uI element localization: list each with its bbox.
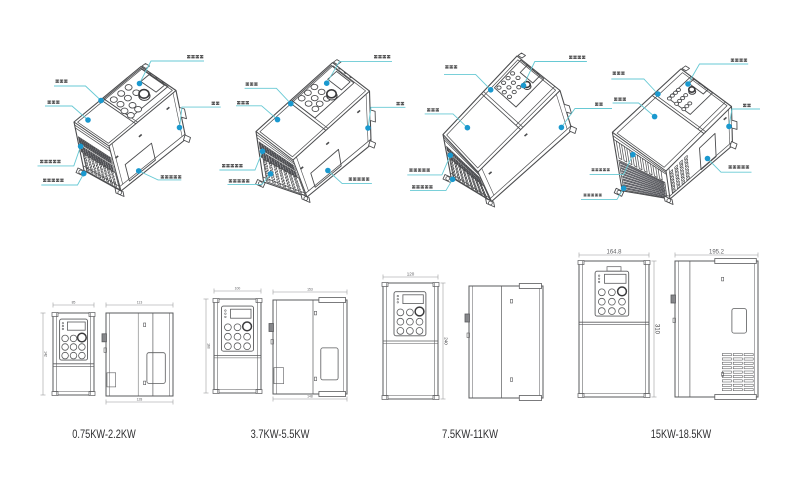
svg-text:7.5KW-11KW: 7.5KW-11KW bbox=[442, 427, 499, 441]
svg-text:128: 128 bbox=[137, 398, 143, 402]
svg-text:120: 120 bbox=[407, 272, 415, 277]
svg-text:15KW-18.5KW: 15KW-18.5KW bbox=[651, 427, 712, 441]
svg-text:148: 148 bbox=[307, 395, 313, 399]
svg-text:142: 142 bbox=[44, 351, 48, 357]
svg-text:160: 160 bbox=[207, 343, 211, 349]
svg-text:100: 100 bbox=[235, 287, 241, 291]
svg-text:195.2: 195.2 bbox=[709, 250, 725, 256]
svg-text:113: 113 bbox=[137, 301, 143, 305]
svg-text:153: 153 bbox=[307, 288, 313, 292]
svg-text:0.75KW-2.2KW: 0.75KW-2.2KW bbox=[72, 427, 136, 441]
svg-text:164.8: 164.8 bbox=[606, 250, 622, 256]
svg-text:310: 310 bbox=[654, 324, 660, 335]
svg-text:85: 85 bbox=[72, 301, 76, 305]
svg-text:240: 240 bbox=[444, 337, 449, 345]
svg-text:3.7KW-5.5KW: 3.7KW-5.5KW bbox=[251, 427, 310, 441]
